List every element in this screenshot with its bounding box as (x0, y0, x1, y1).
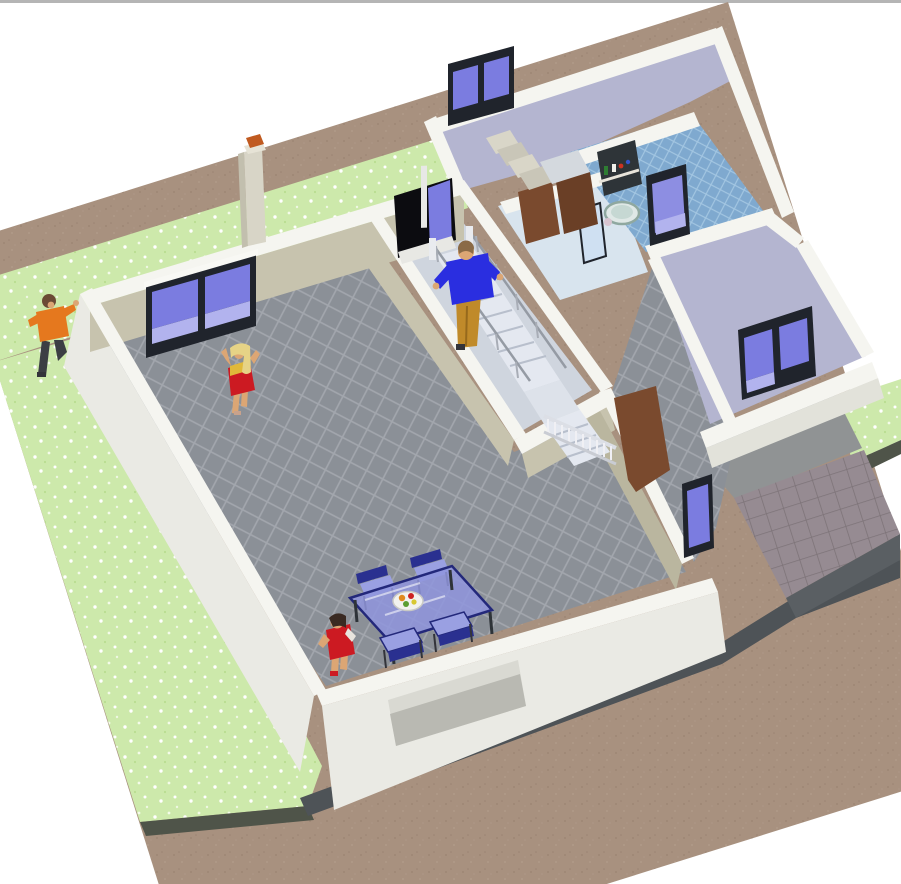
table-leg (355, 600, 357, 622)
window-pane (453, 65, 478, 110)
table-leg (490, 612, 492, 634)
render-canvas (0, 0, 901, 884)
window-pane (484, 56, 509, 101)
door-glass (687, 484, 710, 548)
red-shoe (330, 671, 338, 676)
shoe (234, 411, 241, 415)
face (48, 302, 55, 309)
shoe (37, 372, 46, 377)
hand (73, 300, 79, 306)
sink-basin (611, 205, 633, 219)
bath-mat (604, 218, 612, 226)
window-pane (779, 318, 809, 370)
red-dress (326, 624, 355, 660)
table-leg (450, 570, 452, 590)
window-edge-strip (0, 0, 901, 3)
fruit-plate (393, 592, 423, 611)
hand (497, 274, 504, 281)
shoe (456, 344, 465, 350)
window-pane (744, 329, 774, 381)
patio-glass-door (682, 474, 714, 558)
hand (433, 283, 440, 290)
entry-door-post (421, 166, 427, 228)
newel-post (429, 238, 436, 260)
house-3d-viewport[interactable] (0, 0, 901, 884)
bathroom-window (646, 164, 690, 246)
trouser-seam (466, 306, 467, 346)
